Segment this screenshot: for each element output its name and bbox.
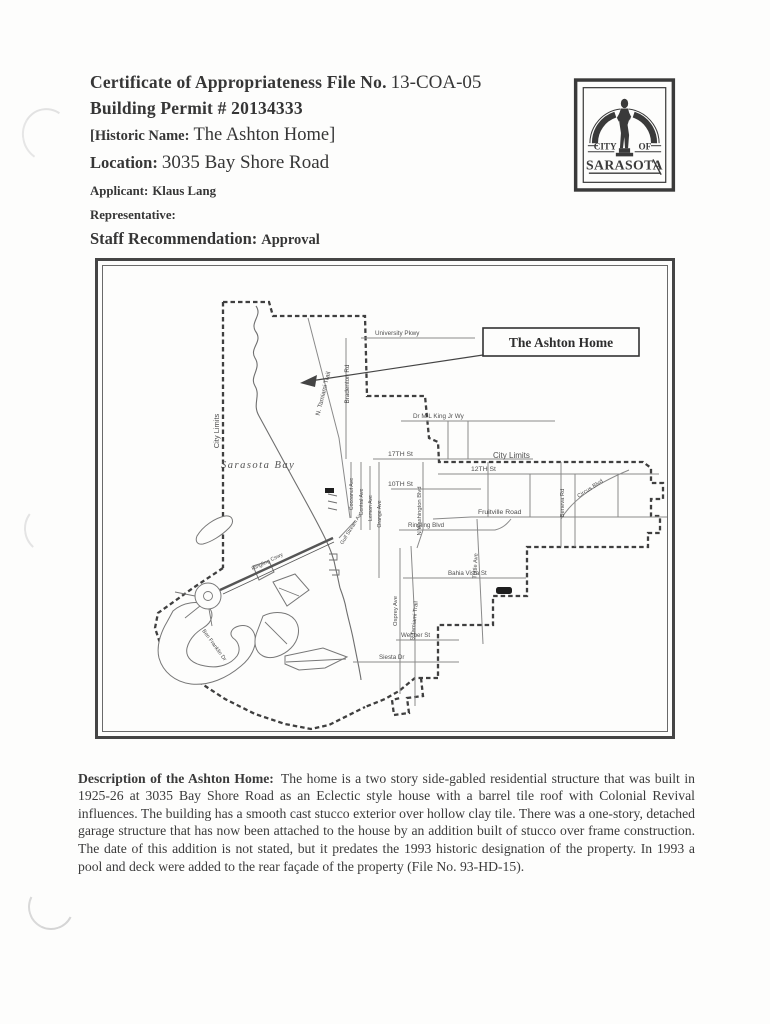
certificate-label: Certificate of Appropriateness File No.: [90, 72, 387, 92]
landmark-blob-bayfront: [325, 488, 334, 493]
location-line: Location: 3035 Bay Shore Road: [90, 152, 570, 173]
label-orange-ave: Orange Ave: [377, 500, 383, 527]
certificate-number: 13-COA-05: [391, 72, 482, 93]
label-university-pkwy: University Pkwy: [375, 330, 420, 337]
seal-graphic: CITY OF SARASOTA: [573, 78, 676, 192]
seal-city-word: CITY: [594, 141, 617, 151]
street-circus-blvd: [561, 470, 629, 519]
lido-key: [158, 603, 255, 685]
sarasota-map-graphic: City Limits City Limits Sarasota Bay Uni…: [103, 266, 667, 731]
staff-recommendation-label: Staff Recommendation:: [90, 229, 257, 248]
label-osprey-ave: Osprey Ave: [393, 596, 399, 626]
label-10th-st: 10TH St: [388, 481, 413, 488]
representative-line: Representative:: [90, 206, 570, 224]
label-sarasota-bay: Sarasota Bay: [221, 460, 295, 471]
street-grid-verticals-east: [488, 462, 618, 547]
label-12th-st: 12TH St: [471, 466, 496, 473]
label-city-limits-right: City Limits: [493, 451, 530, 460]
location-label: Location:: [90, 153, 158, 172]
barrier-islands: [158, 516, 347, 684]
description-heading: Description of the Ashton Home:: [78, 771, 274, 786]
label-17th-st: 17TH St: [388, 451, 413, 458]
applicant-label: Applicant:: [90, 184, 148, 198]
st-armands-circle: [195, 583, 221, 609]
city-of-sarasota-seal: CITY OF SARASOTA: [573, 78, 676, 192]
historic-name-value: The Ashton Home]: [193, 125, 335, 145]
description-body: The home is a two story side-gabled resi…: [78, 771, 695, 874]
building-permit: Building Permit # 20134333: [90, 98, 303, 118]
callout-label: The Ashton Home: [509, 335, 613, 350]
certificate-line: Certificate of Appropriateness File No. …: [90, 72, 570, 93]
label-siesta-dr: Siesta Dr: [379, 654, 404, 661]
hole-punch-artifact-middle: [22, 503, 71, 555]
historic-name-line: [Historic Name: The Ashton Home]: [90, 125, 570, 146]
label-central-ave: Central Ave: [359, 489, 365, 516]
street-minor-verticals-north: [448, 421, 468, 459]
north-key: [196, 516, 232, 544]
building-permit-line: Building Permit # 20134333: [90, 99, 570, 119]
landmark-blob-east: [496, 587, 512, 594]
seal-name-word: SARASOTA: [586, 158, 663, 173]
location-value: 3035 Bay Shore Road: [162, 152, 329, 173]
map-labels: City Limits City Limits Sarasota Bay Uni…: [200, 330, 604, 662]
location-map-frame: City Limits City Limits Sarasota Bay Uni…: [95, 258, 675, 739]
seal-of-word: OF: [638, 141, 651, 151]
location-map: City Limits City Limits Sarasota Bay Uni…: [102, 265, 668, 732]
label-lemon-ave: Lemon Ave: [368, 495, 374, 521]
label-fruitville: Fruitville Road: [478, 509, 522, 516]
hole-punch-artifact-bottom: [22, 878, 80, 936]
scanned-document-page: Certificate of Appropriateness File No. …: [0, 0, 770, 1024]
bird-key: [273, 574, 309, 606]
callout-arrowhead: [300, 375, 317, 387]
label-circus-blvd: Circus Blvd: [577, 479, 605, 500]
label-beneva-rd: Beneva Rd: [560, 489, 566, 518]
description-paragraph: Description of the Ashton Home:The home …: [78, 770, 695, 876]
applicant-line: Applicant: Klaus Lang: [90, 182, 570, 200]
label-webber-st: Webber St: [401, 632, 430, 639]
representative-label: Representative:: [90, 208, 176, 222]
historic-name-label: [Historic Name:: [90, 128, 189, 144]
label-ben-franklin: Ben Franklin Dr: [200, 628, 227, 662]
label-cocoanut-ave: Cocoanut Ave: [349, 478, 355, 510]
document-header: Certificate of Appropriateness File No. …: [90, 72, 570, 255]
label-mlk-way: Dr M L King Jr Wy: [413, 413, 465, 420]
applicant-value: Klaus Lang: [152, 184, 216, 198]
boundary-bottom: [365, 678, 438, 707]
hole-punch-artifact-top: [17, 103, 77, 166]
label-bahia-vista: Bahia Vista St: [448, 570, 487, 577]
callout-arrow-line: [310, 355, 483, 381]
staff-recommendation-line: Staff Recommendation: Approval: [90, 230, 570, 249]
coon-key: [255, 613, 298, 658]
label-city-limits-left: City Limits: [212, 413, 221, 448]
street-fruitville: [433, 517, 667, 519]
label-ringling-blvd: Ringling Blvd: [408, 522, 445, 529]
staff-recommendation-value: Approval: [261, 232, 320, 248]
label-bradenton-rd: Bradenton Rd: [344, 364, 351, 403]
